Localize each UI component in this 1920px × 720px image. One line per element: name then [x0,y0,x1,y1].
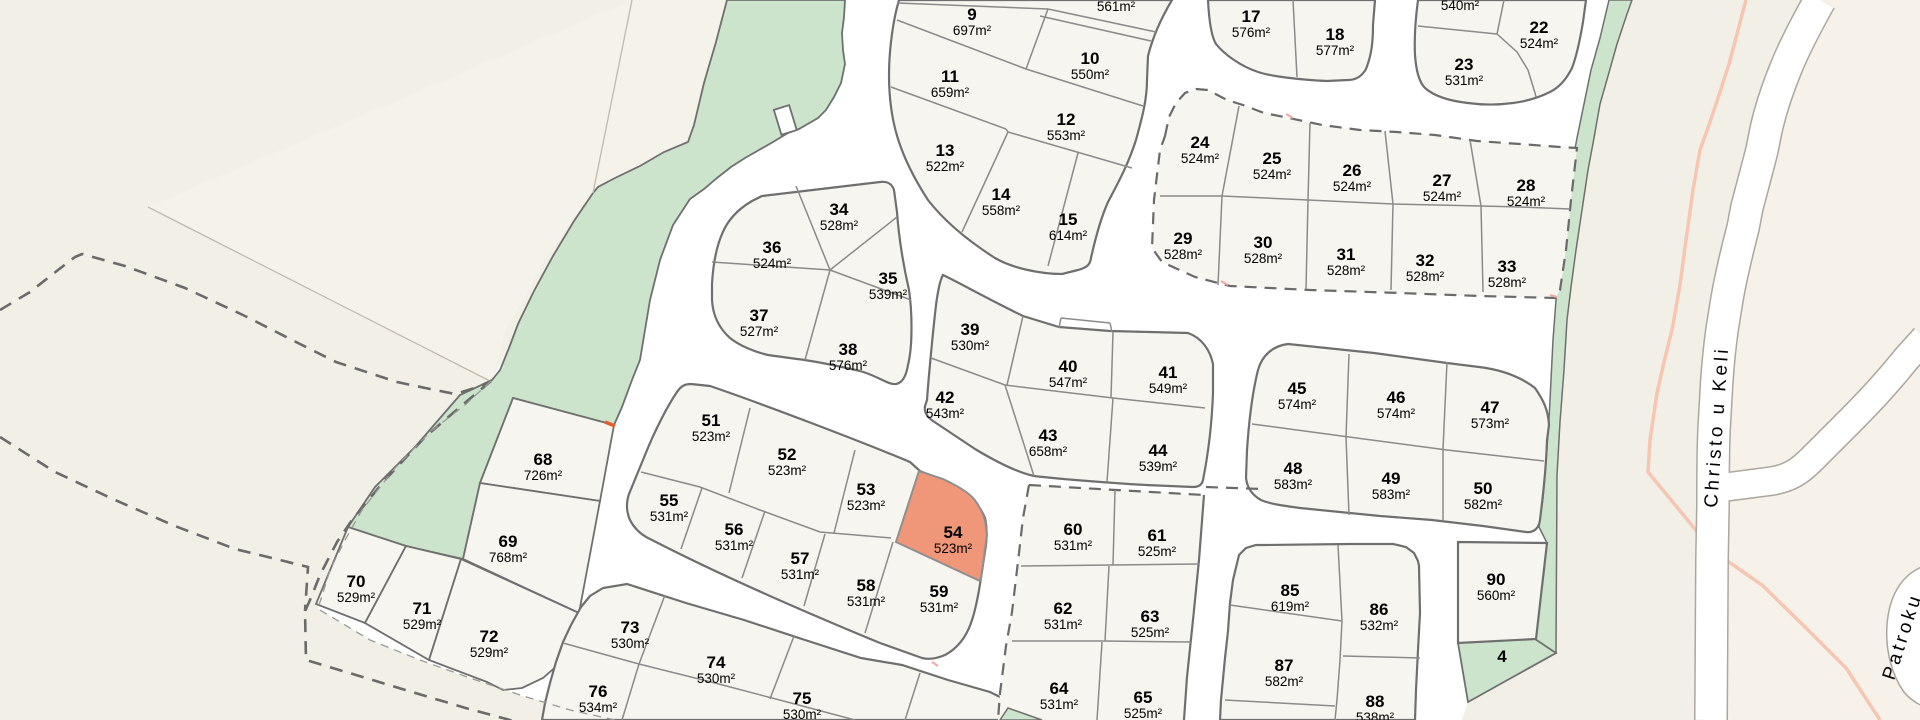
svg-text:26: 26 [1343,161,1362,180]
svg-text:659m²: 659m² [931,85,970,100]
svg-text:528m²: 528m² [1406,269,1445,284]
svg-text:531m²: 531m² [650,509,689,524]
svg-text:23: 23 [1455,55,1474,74]
svg-text:85: 85 [1281,581,1300,600]
svg-text:574m²: 574m² [1278,397,1317,412]
svg-text:90: 90 [1487,570,1506,589]
svg-text:32: 32 [1416,251,1435,270]
svg-text:69: 69 [499,532,518,551]
svg-text:18: 18 [1326,25,1345,44]
svg-text:37: 37 [750,306,769,325]
svg-text:539m²: 539m² [1139,459,1178,474]
svg-text:12: 12 [1057,110,1076,129]
svg-text:45: 45 [1288,379,1307,398]
svg-text:528m²: 528m² [1164,247,1203,262]
svg-text:53: 53 [857,480,876,499]
svg-text:582m²: 582m² [1265,674,1304,689]
svg-text:51: 51 [702,411,721,430]
svg-text:76: 76 [589,682,608,701]
svg-text:547m²: 547m² [1049,375,1088,390]
svg-text:58: 58 [857,576,876,595]
svg-text:583m²: 583m² [1274,477,1313,492]
svg-text:768m²: 768m² [489,550,528,565]
svg-text:39: 39 [961,320,980,339]
svg-text:527m²: 527m² [740,324,779,339]
svg-text:530m²: 530m² [783,707,822,720]
svg-text:60: 60 [1064,520,1083,539]
svg-text:538m²: 538m² [1356,710,1395,720]
svg-text:524m²: 524m² [1520,36,1559,51]
svg-text:74: 74 [707,653,726,672]
svg-text:38: 38 [839,340,858,359]
svg-text:531m²: 531m² [1044,617,1083,632]
svg-text:530m²: 530m² [697,671,736,686]
svg-text:524m²: 524m² [1507,194,1546,209]
svg-text:15: 15 [1059,210,1078,229]
svg-text:17: 17 [1242,7,1261,26]
svg-text:30: 30 [1254,233,1273,252]
svg-text:63: 63 [1141,607,1160,626]
svg-text:529m²: 529m² [470,645,509,660]
svg-text:523m²: 523m² [847,498,886,513]
svg-text:524m²: 524m² [1181,151,1220,166]
svg-text:531m²: 531m² [715,538,754,553]
svg-text:523m²: 523m² [692,429,731,444]
svg-text:531m²: 531m² [781,567,820,582]
svg-text:65: 65 [1134,688,1153,707]
svg-text:34: 34 [830,200,849,219]
svg-text:523m²: 523m² [934,541,973,556]
svg-text:40: 40 [1059,357,1078,376]
svg-text:4: 4 [1497,647,1507,666]
svg-text:41: 41 [1159,363,1178,382]
svg-text:25: 25 [1263,149,1282,168]
svg-text:525m²: 525m² [1138,544,1177,559]
svg-text:73: 73 [621,618,640,637]
svg-text:64: 64 [1050,679,1069,698]
svg-text:49: 49 [1382,469,1401,488]
svg-text:61: 61 [1148,526,1167,545]
svg-text:524m²: 524m² [1253,167,1292,182]
svg-text:11: 11 [941,67,959,86]
svg-text:529m²: 529m² [403,617,442,632]
svg-text:524m²: 524m² [753,256,792,271]
svg-text:56: 56 [725,520,744,539]
svg-text:48: 48 [1284,459,1303,478]
svg-text:539m²: 539m² [869,287,908,302]
svg-text:68: 68 [534,450,553,469]
svg-text:88: 88 [1366,692,1385,711]
svg-text:28: 28 [1517,176,1536,195]
svg-text:31: 31 [1337,245,1356,264]
svg-text:9: 9 [967,5,976,24]
svg-text:577m²: 577m² [1316,43,1355,58]
svg-text:560m²: 560m² [1477,588,1516,603]
svg-text:576m²: 576m² [829,358,868,373]
svg-text:524m²: 524m² [1423,189,1462,204]
svg-text:530m²: 530m² [611,636,650,651]
svg-text:42: 42 [936,388,955,407]
svg-text:43: 43 [1039,426,1058,445]
svg-text:531m²: 531m² [847,594,886,609]
svg-text:27: 27 [1433,171,1452,190]
svg-text:14: 14 [992,185,1011,204]
svg-text:59: 59 [930,582,949,601]
svg-text:558m²: 558m² [982,203,1021,218]
svg-text:614m²: 614m² [1049,228,1088,243]
svg-text:531m²: 531m² [1040,697,1079,712]
svg-text:528m²: 528m² [1488,275,1527,290]
svg-text:86: 86 [1370,600,1389,619]
svg-text:35: 35 [879,269,898,288]
svg-text:36: 36 [763,238,782,257]
svg-text:55: 55 [660,491,679,510]
svg-text:54: 54 [944,523,963,542]
svg-text:531m²: 531m² [1445,73,1484,88]
svg-text:87: 87 [1275,656,1294,675]
svg-text:524m²: 524m² [1333,179,1372,194]
svg-text:24: 24 [1191,133,1210,152]
svg-text:44: 44 [1149,441,1168,460]
svg-text:525m²: 525m² [1124,706,1163,720]
svg-text:574m²: 574m² [1377,406,1416,421]
svg-text:33: 33 [1498,257,1517,276]
svg-text:29: 29 [1174,229,1193,248]
svg-text:22: 22 [1530,18,1549,37]
svg-text:573m²: 573m² [1471,416,1510,431]
svg-text:576m²: 576m² [1232,25,1271,40]
svg-text:529m²: 529m² [337,590,376,605]
svg-text:528m²: 528m² [1327,263,1366,278]
svg-text:50: 50 [1474,479,1493,498]
svg-text:658m²: 658m² [1029,444,1068,459]
svg-text:553m²: 553m² [1047,128,1086,143]
svg-text:75: 75 [793,689,812,708]
svg-text:62: 62 [1054,599,1073,618]
svg-text:523m²: 523m² [768,463,807,478]
svg-text:46: 46 [1387,388,1406,407]
svg-text:543m²: 543m² [926,406,965,421]
svg-text:57: 57 [791,549,810,568]
svg-text:726m²: 726m² [524,468,563,483]
svg-text:532m²: 532m² [1360,618,1399,633]
svg-text:534m²: 534m² [579,700,618,715]
svg-text:522m²: 522m² [926,159,965,174]
svg-text:549m²: 549m² [1149,381,1188,396]
svg-text:582m²: 582m² [1464,497,1503,512]
svg-text:531m²: 531m² [920,600,959,615]
svg-text:10: 10 [1081,49,1100,68]
svg-text:47: 47 [1481,398,1500,417]
svg-text:530m²: 530m² [951,338,990,353]
svg-text:697m²: 697m² [953,23,992,38]
svg-text:52: 52 [778,445,797,464]
svg-text:525m²: 525m² [1131,625,1170,640]
svg-text:540m²: 540m² [1441,0,1480,13]
svg-text:72: 72 [480,627,499,646]
svg-text:619m²: 619m² [1271,599,1310,614]
svg-text:528m²: 528m² [820,218,859,233]
svg-text:561m²: 561m² [1097,0,1136,14]
svg-text:13: 13 [936,141,955,160]
svg-text:550m²: 550m² [1071,67,1110,82]
svg-text:71: 71 [413,599,432,618]
svg-text:583m²: 583m² [1372,487,1411,502]
svg-text:70: 70 [347,572,366,591]
svg-text:528m²: 528m² [1244,251,1283,266]
svg-text:531m²: 531m² [1054,538,1093,553]
